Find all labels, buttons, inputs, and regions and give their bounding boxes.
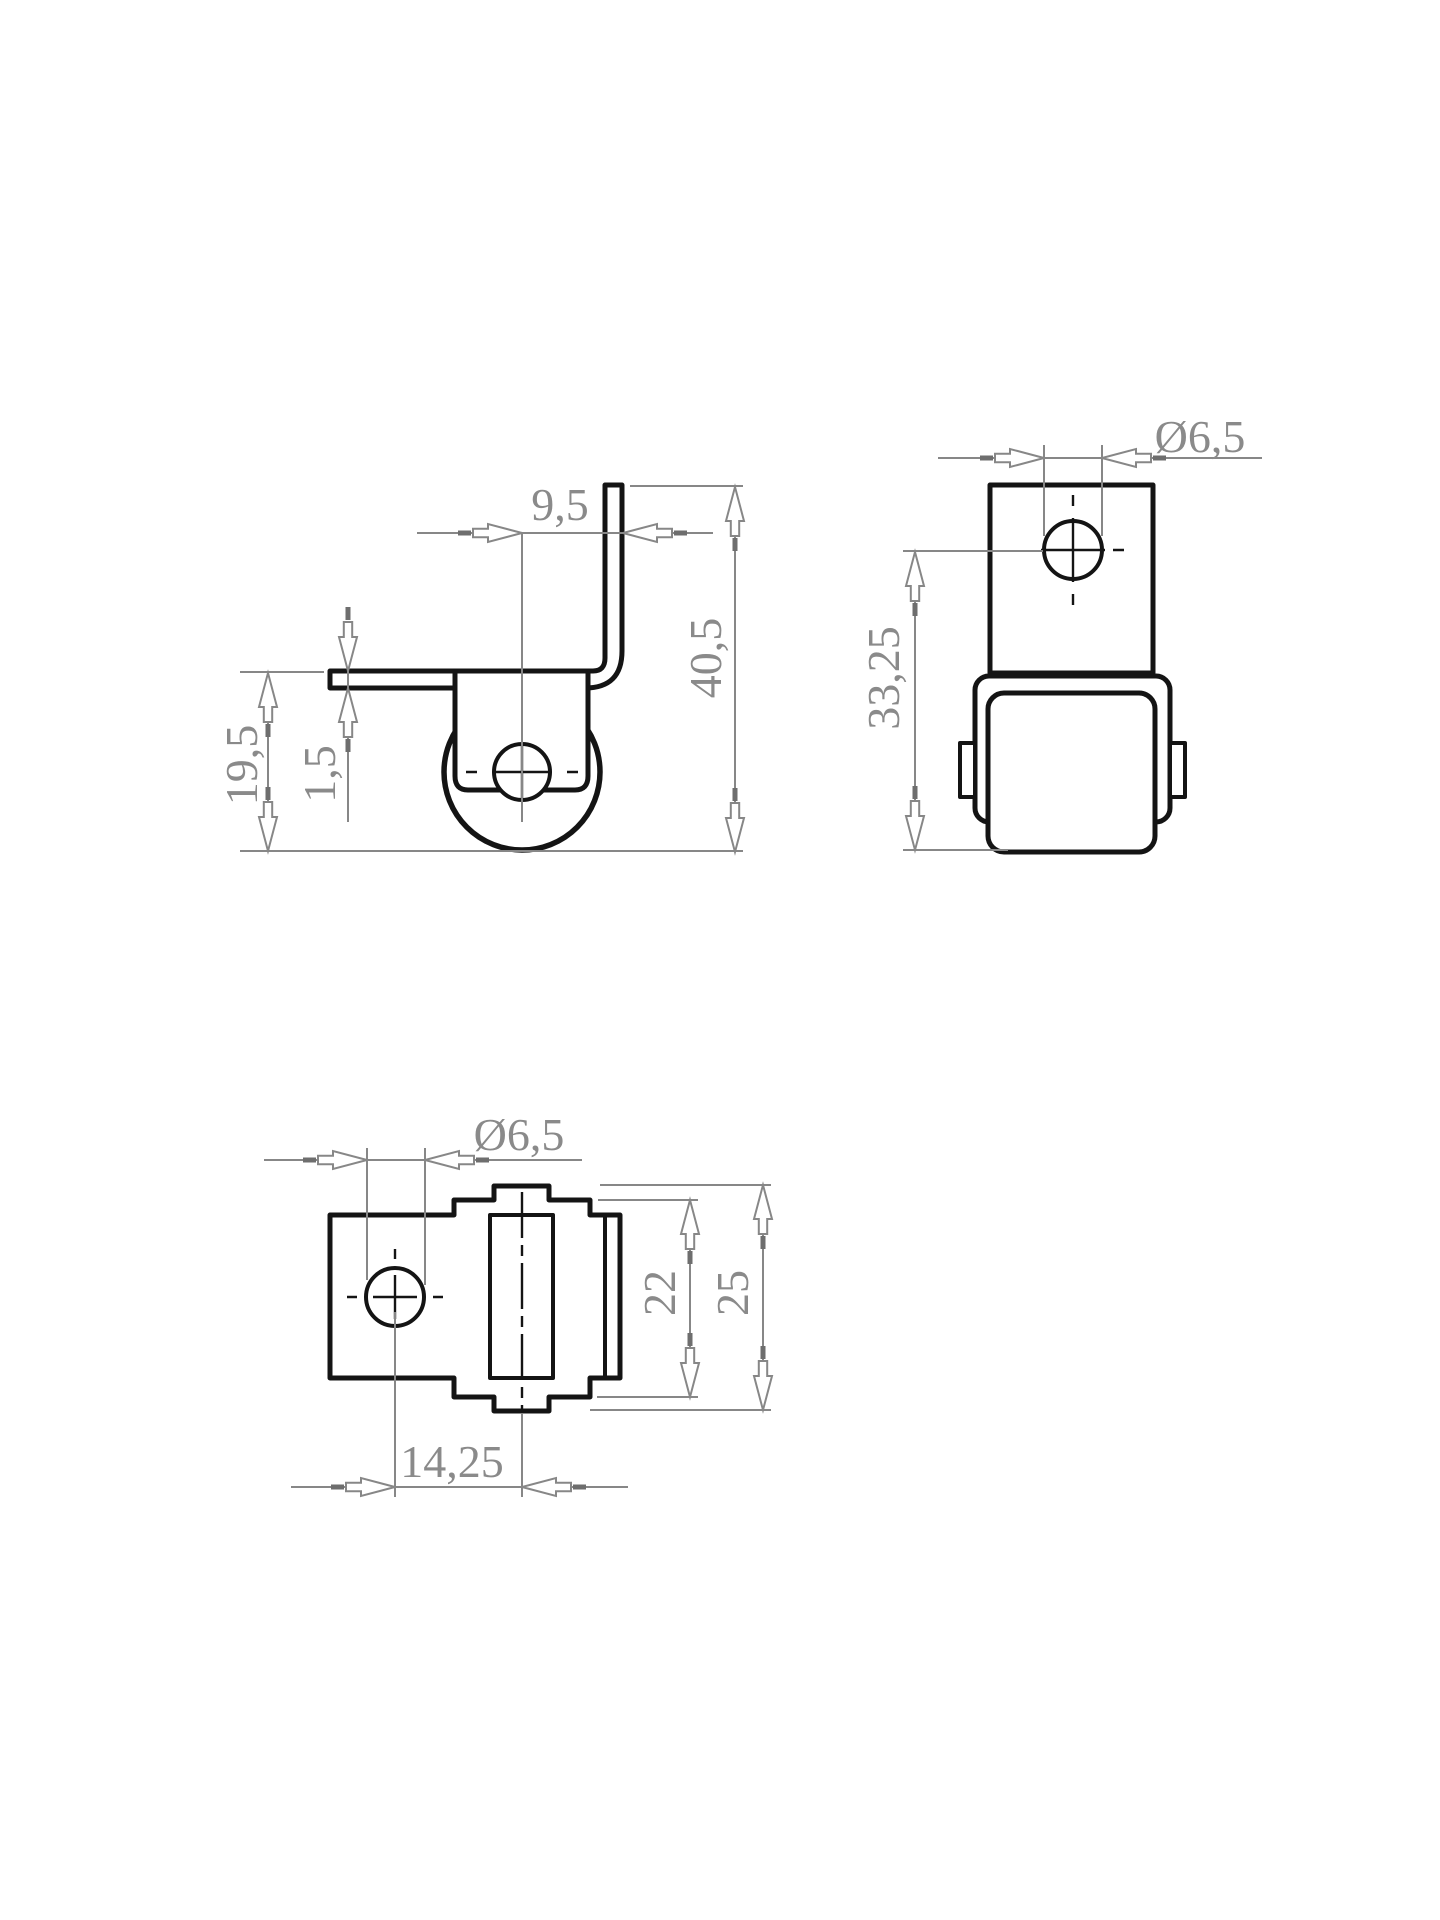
dim-label-33-25: 33,25 xyxy=(858,626,909,730)
dim-side-flange-offset: 9,5 xyxy=(417,479,713,542)
dim-label-22: 22 xyxy=(634,1270,685,1316)
dim-label-top-dia-6-5: Ø6,5 xyxy=(474,1109,565,1160)
dim-side-overall-height: 40,5 xyxy=(630,486,744,852)
dim-label-front-dia-6-5: Ø6,5 xyxy=(1155,411,1246,462)
dim-side-plate-thickness: 1,5 xyxy=(294,607,357,822)
front-axle-stub-left xyxy=(960,743,975,797)
dim-label-25: 25 xyxy=(707,1270,758,1316)
dim-label-1-5: 1,5 xyxy=(294,745,345,803)
side-view: 9,5 40,5 19,5 1,5 xyxy=(216,479,744,852)
front-axle-stub-right xyxy=(1170,743,1185,797)
front-wheel xyxy=(988,693,1155,852)
dim-label-40-5: 40,5 xyxy=(680,618,731,699)
technical-drawing: 9,5 40,5 19,5 1,5 xyxy=(0,0,1440,1920)
dim-label-9-5: 9,5 xyxy=(531,479,589,530)
dim-label-14-25: 14,25 xyxy=(400,1436,504,1487)
front-view: Ø6,5 33,25 xyxy=(858,411,1262,852)
drawing-page: 9,5 40,5 19,5 1,5 xyxy=(0,0,1440,1920)
dim-label-19-5: 19,5 xyxy=(216,725,267,806)
top-view: Ø6,5 22 25 14,25 xyxy=(264,1109,772,1497)
